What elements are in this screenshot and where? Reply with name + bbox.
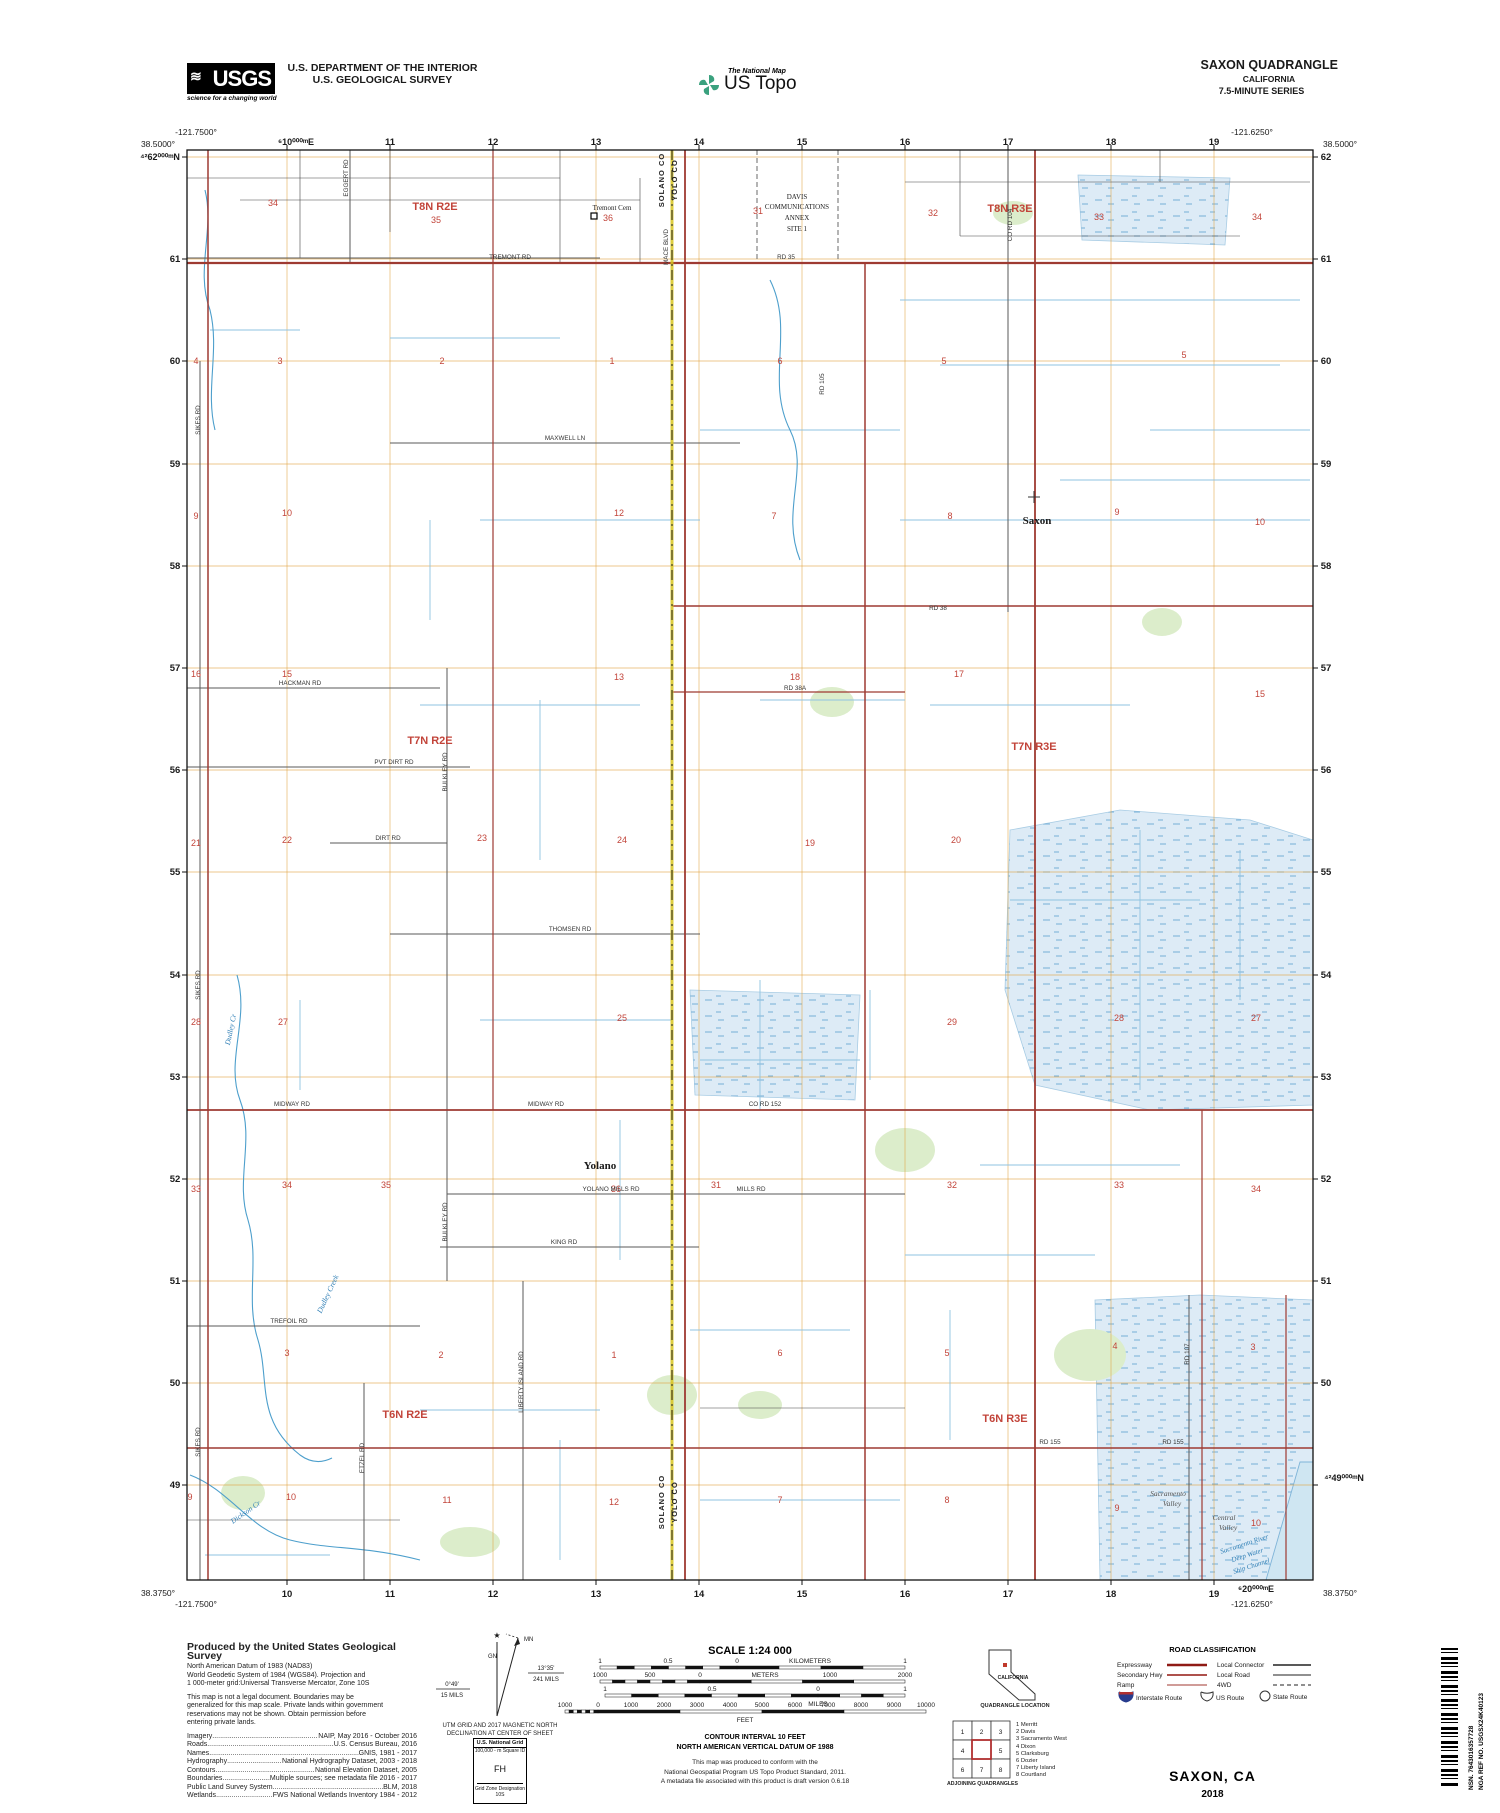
map-label-gridnum: 59 — [170, 459, 181, 470]
credit-dots: ........................................… — [216, 1792, 273, 1801]
map-label-vly: Central — [1213, 1513, 1236, 1522]
map-label-gridnum: 15 — [797, 137, 808, 148]
map-label-sec: 7 — [771, 511, 776, 521]
datum-line: North American Datum of 1983 (NAD83) — [187, 1663, 417, 1672]
adjoining-name: 2 Davis — [1016, 1729, 1106, 1736]
map-label-rd: SIKES RD — [195, 405, 202, 435]
credit-row: Public Land Survey System...............… — [187, 1784, 417, 1793]
map-label-sec: 10 — [1255, 517, 1265, 527]
map-label-gridnum: 55 — [1321, 867, 1332, 878]
map-label-sec: 11 — [442, 1495, 451, 1505]
map-label-gridnum: 10 — [282, 1589, 293, 1600]
map-label-rd: MIDWAY RD — [274, 1101, 310, 1108]
map-label-cnty: YOLO CO — [670, 1481, 679, 1523]
map-label-gridnum: 12 — [488, 137, 499, 148]
map-label-gridnum: 13 — [591, 137, 602, 148]
road-class-label: Ramp — [1117, 1682, 1135, 1689]
map-label-gridnum: 18 — [1106, 137, 1117, 148]
mn-label: MN — [524, 1637, 533, 1643]
map-label-plc: ANNEX — [785, 214, 810, 222]
credit-dots: ........................................… — [207, 1741, 333, 1750]
declination-note-1: UTM GRID AND 2017 MAGNETIC NORTH — [420, 1722, 580, 1730]
topo-map: -121.7500°38.5000°⁶10⁰⁰⁰ᵐE11121314151617… — [0, 0, 1500, 1813]
credit-key: Imagery — [187, 1733, 212, 1742]
map-label-gridnum: 19 — [1209, 1589, 1220, 1600]
usng-square-label: 100,000 - m Square ID — [474, 1748, 526, 1754]
credit-key: Contours — [187, 1767, 215, 1776]
state-route-circle-icon — [1260, 1691, 1270, 1701]
usgs-topo-sheet: ≋ USGS science for a changing world U.S.… — [0, 0, 1500, 1813]
map-label-gridnum: 11 — [385, 137, 396, 148]
disclaimer-line: entering private lands. — [187, 1719, 417, 1728]
adjoining-name: 1 Merritt — [1016, 1722, 1106, 1729]
map-label-gridnum: 60 — [170, 356, 181, 367]
map-label-sec: 9 — [1114, 507, 1119, 517]
map-label-sec: 33 — [191, 1184, 201, 1194]
map-label-sec: 20 — [951, 835, 961, 845]
map-label-sec: 32 — [928, 208, 938, 218]
map-label-sec: 29 — [947, 1017, 957, 1027]
map-label-gridnum: 60 — [1321, 356, 1332, 367]
map-label-cnty: SOLANO CO — [657, 153, 666, 207]
credit-row: Boundaries..............................… — [187, 1775, 417, 1784]
map-label-plc: DAVIS — [787, 193, 808, 201]
adjoining-number: 3 — [999, 1729, 1003, 1736]
map-label-sec: 34 — [1251, 1184, 1261, 1194]
quadrangle-location-caption: QUADRANGLE LOCATION — [975, 1703, 1055, 1709]
map-label-gridnum: 52 — [170, 1174, 181, 1185]
map-label-gridnum: 61 — [170, 254, 181, 265]
map-label-coord: 38.3750° — [1323, 1588, 1357, 1598]
road-classification-legend: ExpresswaySecondary HwyRampLocal Connect… — [1105, 1655, 1315, 1705]
map-label-gridnum: 53 — [170, 1072, 181, 1083]
map-label-sec: 8 — [944, 1495, 949, 1505]
map-label-utm: ⁶20⁰⁰⁰ᵐE — [1238, 1584, 1274, 1594]
sheet-year: 2018 — [1130, 1789, 1295, 1800]
map-label-gridnum: 50 — [170, 1378, 181, 1389]
map-label-sec: 34 — [268, 198, 278, 208]
map-label-gridnum: 19 — [1209, 137, 1220, 148]
map-label-sec: 22 — [282, 835, 292, 845]
map-label-sec: 35 — [381, 1180, 391, 1190]
california-outline: CALIFORNIA — [983, 1648, 1053, 1703]
credit-key: Wetlands — [187, 1792, 216, 1801]
map-label-plc: COMMUNICATIONS — [765, 203, 829, 211]
adjoining-number: 7 — [980, 1767, 984, 1774]
credit-row: Hydrography.............................… — [187, 1758, 417, 1767]
map-label-gridnum: 14 — [694, 1589, 705, 1600]
creek — [204, 190, 215, 430]
credit-dots: ........................................… — [209, 1750, 358, 1759]
map-label-rd: RD 155 — [1039, 1439, 1061, 1446]
barcode-nsn: NSN. 7643016357728 — [1468, 1726, 1475, 1790]
map-label-sec: 33 — [1094, 212, 1104, 222]
adjoining-number: 5 — [999, 1748, 1003, 1755]
contour-line2: NORTH AMERICAN VERTICAL DATUM OF 1988 — [640, 1743, 870, 1753]
adjoining-number: 6 — [961, 1767, 965, 1774]
map-label-sec: 16 — [191, 669, 201, 679]
credit-value: Multiple sources; see metadata file 2016… — [270, 1775, 417, 1784]
map-label-rd: SIKES RD — [195, 1427, 202, 1457]
map-label-sec: 4 — [1112, 1341, 1117, 1351]
adjoining-quadrangles-grid: 12345678 — [952, 1720, 1014, 1782]
map-label-sec: 5 — [1181, 350, 1186, 360]
map-label-sec: 8 — [947, 511, 952, 521]
map-label-gridnum: 12 — [488, 1589, 499, 1600]
map-label-gridnum: 52 — [1321, 1174, 1332, 1185]
shield-label: State Route — [1273, 1694, 1308, 1701]
adjoining-name: 5 Clarksburg — [1016, 1751, 1106, 1758]
gn-label: GN — [488, 1654, 497, 1660]
map-label-town: Saxon — [1023, 515, 1052, 527]
map-label-gridnum: 17 — [1003, 137, 1014, 148]
credit-dots: ........................................… — [227, 1758, 282, 1767]
california-label: CALIFORNIA — [998, 1675, 1029, 1681]
credits-block: Produced by the United States Geological… — [187, 1643, 417, 1801]
map-label-rd: ETZEL RD — [359, 1442, 366, 1473]
map-label-sec: 10 — [282, 508, 292, 518]
marsh-pattern — [1005, 810, 1313, 1110]
map-label-sec: 5 — [944, 1348, 949, 1358]
barcode-nga: NGA REF NO. USGSX24K40123 — [1478, 1693, 1485, 1790]
map-label-sec: 2 — [439, 356, 444, 366]
adjoining-cell — [972, 1740, 991, 1759]
map-label-rd: CO RD 152 — [749, 1101, 782, 1108]
map-label-sec: 23 — [477, 833, 487, 843]
map-label-vly: Sacramento — [1150, 1489, 1186, 1498]
map-label-sec: 19 — [805, 838, 815, 848]
adjoining-number: 1 — [961, 1729, 965, 1736]
map-label-sec: 3 — [277, 356, 282, 366]
map-label-rd: RD 38 — [929, 605, 947, 612]
map-label-rd: TREMONT RD — [489, 254, 531, 261]
credit-row: Contours................................… — [187, 1767, 417, 1776]
disclaimer-line: This map is not a legal document. Bounda… — [187, 1694, 417, 1703]
standard-note-line: This map was produced to conform with th… — [600, 1758, 910, 1768]
map-label-sec: 1 — [609, 356, 614, 366]
map-label-rd: LIBERTY ISLAND RD — [518, 1351, 525, 1413]
map-label-sec: 34 — [282, 1180, 292, 1190]
map-label-gridnum: 53 — [1321, 1072, 1332, 1083]
adjoining-number: 4 — [961, 1748, 965, 1755]
map-label-gridnum: 14 — [694, 137, 705, 148]
map-label-rd: RD 155 — [1162, 1439, 1184, 1446]
map-label-town: Yolano — [584, 1160, 617, 1172]
map-label-gridnum: 51 — [1321, 1276, 1332, 1287]
map-label-sec: 6 — [777, 1348, 782, 1358]
map-label-gridnum: 62 — [1321, 152, 1332, 163]
map-label-rd: RD 38A — [784, 685, 807, 692]
credit-row: Wetlands................................… — [187, 1792, 417, 1801]
usng-title: U.S. National Grid — [474, 1739, 526, 1748]
map-label-twp: T7N R2E — [407, 735, 452, 747]
map-label-coord: 38.5000° — [1323, 139, 1357, 149]
standard-note: This map was produced to conform with th… — [600, 1758, 910, 1787]
map-label-plc: Tremont Cem — [593, 204, 632, 212]
map-label-gridnum: 54 — [1321, 970, 1332, 981]
cemetery-icon — [591, 213, 597, 219]
map-label-sec: 31 — [711, 1180, 721, 1190]
map-label-sec: 17 — [954, 669, 964, 679]
map-label-sec: 21 — [191, 838, 201, 848]
map-label-coord: 38.3750° — [141, 1588, 175, 1598]
map-label-sec: 27 — [278, 1017, 288, 1027]
map-label-vly: Valley — [1219, 1523, 1238, 1532]
credit-dots: ........................................… — [212, 1733, 318, 1742]
credit-row: Names...................................… — [187, 1750, 417, 1759]
map-label-rd: DIRT RD — [375, 835, 401, 842]
credit-value: NAIP, May 2016 - October 2016 — [318, 1733, 417, 1742]
scale-title: SCALE 1:24 000 — [640, 1645, 860, 1657]
credit-dots: ........................................… — [215, 1767, 315, 1776]
map-label-rd: THOMSEN RD — [549, 926, 592, 933]
map-label-sec: 33 — [1114, 1180, 1124, 1190]
map-label-sec: 3 — [284, 1348, 289, 1358]
usng-zone: 10S — [474, 1792, 526, 1798]
map-label-sec: 2 — [438, 1350, 443, 1360]
map-label-gridnum: 11 — [385, 1589, 396, 1600]
vegetation-patch — [1142, 608, 1182, 636]
credit-key: Boundaries — [187, 1775, 222, 1784]
vegetation-patch — [440, 1527, 500, 1557]
shield-label: Interstate Route — [1136, 1695, 1183, 1702]
map-label-sec: 1 — [611, 1350, 616, 1360]
map-label-sec: 10 — [1251, 1518, 1261, 1528]
map-label-sec: 34 — [1252, 212, 1262, 222]
road-class-label: Expressway — [1117, 1662, 1153, 1669]
map-label-rd: HACKMAN RD — [279, 680, 322, 687]
adjoining-quadrangles-caption: ADJOINING QUADRANGLES — [935, 1781, 1030, 1787]
map-label-gridnum: 18 — [1106, 1589, 1117, 1600]
marsh-pattern — [690, 990, 860, 1100]
map-label-gridnum: 61 — [1321, 254, 1332, 265]
datum-line: 1 000-meter grid:Universal Transverse Me… — [187, 1680, 417, 1689]
map-label-gridnum: 57 — [1321, 663, 1332, 674]
declination-note: UTM GRID AND 2017 MAGNETIC NORTH DECLINA… — [420, 1722, 580, 1738]
standard-note-line: A metadata file associated with this pro… — [600, 1777, 910, 1787]
map-label-utm: ⁴²49⁰⁰⁰ᵐN — [1324, 1473, 1364, 1483]
map-label-gridnum: 16 — [900, 137, 911, 148]
map-label-sec: 36 — [603, 213, 613, 223]
credit-key: Roads — [187, 1741, 207, 1750]
map-label-twp: T7N R3E — [1011, 741, 1056, 753]
credit-value: U.S. Census Bureau, 2016 — [334, 1741, 417, 1750]
adjoining-number: 8 — [999, 1767, 1003, 1774]
adjoining-name: 6 Dozier — [1016, 1758, 1106, 1765]
map-label-gridnum: 55 — [170, 867, 181, 878]
map-label-rd: PVT DIRT RD — [374, 759, 414, 766]
gn-mils: 15 MILS — [441, 1693, 463, 1699]
map-label-twp: T8N R2E — [412, 201, 457, 213]
quad-location-dot — [1003, 1663, 1007, 1667]
map-label-rd: RD 105 — [819, 373, 826, 395]
map-label-sec: 5 — [941, 356, 946, 366]
adjoining-name: 8 Courtland — [1016, 1772, 1106, 1779]
credit-row: Roads...................................… — [187, 1741, 417, 1750]
map-label-sec: 28 — [1114, 1013, 1124, 1023]
adjoining-name: 7 Liberty Island — [1016, 1765, 1106, 1772]
map-label-gridnum: 13 — [591, 1589, 602, 1600]
credit-value: National Hydrography Dataset, 2003 - 201… — [282, 1758, 417, 1767]
map-label-rd: KING RD — [551, 1239, 578, 1246]
map-label-rd: BULKLEY RD — [442, 752, 449, 792]
credit-dots: ........................................… — [273, 1784, 384, 1793]
declination-note-2: DECLINATION AT CENTER OF SHEET — [420, 1730, 580, 1738]
declination-diagram: ★ MN GN 0°49' 15 MILS 13°35' 241 MILS — [430, 1628, 580, 1723]
map-label-plc: SITE 1 — [787, 225, 808, 233]
road-class-label: Secondary Hwy — [1117, 1672, 1163, 1679]
contour-line1: CONTOUR INTERVAL 10 FEET — [640, 1733, 870, 1743]
map-label-sec: 7 — [777, 1495, 782, 1505]
datum-line: World Geodetic System of 1984 (WGS84). P… — [187, 1672, 417, 1681]
map-label-rd: SIKES RD — [195, 970, 202, 1000]
us-route-shield-icon — [1201, 1692, 1213, 1701]
standard-note-line: National Geospatial Program US Topo Prod… — [600, 1768, 910, 1778]
map-label-utm: ⁶10⁰⁰⁰ᵐE — [278, 137, 314, 147]
map-label-vly: Valley — [1163, 1499, 1182, 1508]
adjoining-name: 3 Sacramento West — [1016, 1736, 1106, 1743]
map-label-cnty: SOLANO CO — [657, 1475, 666, 1529]
credit-key: Hydrography — [187, 1758, 227, 1767]
map-label-sec: 32 — [947, 1180, 957, 1190]
disclaimer: This map is not a legal document. Bounda… — [187, 1694, 417, 1728]
credit-row: Imagery.................................… — [187, 1733, 417, 1742]
map-label-coord: 38.5000° — [141, 139, 175, 149]
map-label-utm: ⁴²62⁰⁰⁰ᵐN — [140, 152, 180, 162]
map-label-sec: 9 — [1114, 1503, 1119, 1513]
map-label-gridnum: 54 — [170, 970, 181, 981]
road-class-label: 4WD — [1217, 1682, 1232, 1689]
crossing-icon — [1028, 491, 1040, 503]
marsh-pattern — [1078, 175, 1230, 245]
datum-lines: North American Datum of 1983 (NAD83)Worl… — [187, 1663, 417, 1689]
usng-square-id: FH — [474, 1764, 526, 1774]
map-label-gridnum: 49 — [170, 1480, 181, 1491]
map-label-sec: 3 — [1250, 1342, 1255, 1352]
credit-value: GNIS, 1981 - 2017 — [359, 1750, 417, 1759]
map-label-gridnum: 56 — [1321, 765, 1332, 776]
map-label-sec: 35 — [431, 215, 441, 225]
gn-deg: 0°49' — [445, 1682, 459, 1688]
map-label-sec: 10 — [286, 1492, 296, 1502]
map-label-sec: 9 — [187, 1492, 192, 1502]
map-label-wtr: Dudley Creek — [315, 1273, 341, 1316]
map-label-rd: MACE BLVD — [663, 229, 670, 265]
map-label-coord: -121.7500° — [175, 127, 217, 137]
map-label-coord: -121.6250° — [1231, 127, 1273, 137]
credit-value: FWS National Wetlands Inventory 1984 - 2… — [273, 1792, 417, 1801]
map-label-rd: EGGERT RD — [343, 159, 350, 197]
map-label-gridnum: 51 — [170, 1276, 181, 1287]
produced-by: Produced by the United States Geological… — [187, 1643, 417, 1660]
map-label-rd: MILLS RD — [736, 1186, 765, 1193]
credit-key: Public Land Survey System — [187, 1784, 273, 1793]
map-label-gridnum: 59 — [1321, 459, 1332, 470]
credit-value: National Elevation Dataset, 2005 — [315, 1767, 417, 1776]
map-label-rd: YOLANO MILLS RD — [582, 1186, 639, 1193]
map-label-gridnum: 56 — [170, 765, 181, 776]
map-label-cnty: YOLO CO — [670, 159, 679, 201]
map-label-gridnum: 15 — [797, 1589, 808, 1600]
map-label-gridnum: 57 — [170, 663, 181, 674]
road-classification-title: ROAD CLASSIFICATION — [1130, 1645, 1295, 1654]
map-label-sec: 6 — [777, 356, 782, 366]
interstate-shield-icon — [1119, 1692, 1133, 1702]
map-label-rd: RD 35 — [777, 254, 795, 261]
map-label-rd: BULKLEY RD — [442, 1202, 449, 1242]
creek — [235, 975, 332, 1461]
vegetation-patch — [1054, 1329, 1126, 1381]
map-label-rd: CO RD 104 — [1007, 208, 1014, 241]
barcode — [1441, 1648, 1458, 1788]
map-label-sec: 24 — [617, 835, 627, 845]
adjoining-quadrangles-names: 1 Merritt2 Davis3 Sacramento West4 Dixon… — [1016, 1722, 1106, 1780]
map-label-gridnum: 58 — [170, 561, 181, 572]
map-label-sec: 13 — [614, 672, 624, 682]
map-label-rd: MIDWAY RD — [528, 1101, 564, 1108]
map-label-sec: 4 — [193, 356, 198, 366]
map-label-gridnum: 17 — [1003, 1589, 1014, 1600]
map-label-sec: 25 — [617, 1013, 627, 1023]
map-label-sec: 27 — [1251, 1013, 1261, 1023]
mn-mils: 241 MILS — [533, 1677, 559, 1683]
map-label-gridnum: 58 — [1321, 561, 1332, 572]
map-label-sec: 28 — [191, 1017, 201, 1027]
map-label-sec: 15 — [282, 669, 292, 679]
shield-label: US Route — [1216, 1695, 1245, 1702]
road-class-label: Local Connector — [1217, 1662, 1265, 1669]
map-label-twp: T6N R3E — [982, 1413, 1027, 1425]
map-label-sec: 18 — [790, 672, 800, 682]
svg-text:★: ★ — [493, 1631, 500, 1640]
map-label-rd: RD 107 — [1184, 1343, 1191, 1365]
credit-dots: ........................................… — [222, 1775, 269, 1784]
map-label-gridnum: 16 — [900, 1589, 911, 1600]
map-label-sec: 9 — [193, 511, 198, 521]
sheet-title: SAXON, CA — [1130, 1768, 1295, 1784]
data-credits: Imagery.................................… — [187, 1733, 417, 1801]
disclaimer-line: reservations may not be shown. Obtain pe… — [187, 1711, 417, 1720]
map-label-rd: TREFOIL RD — [270, 1318, 308, 1325]
disclaimer-line: generalized for this map scale. Private … — [187, 1702, 417, 1711]
map-label-rd: MAXWELL LN — [545, 435, 586, 442]
map-label-coord: -121.6250° — [1231, 1599, 1273, 1609]
usng-box: U.S. National Grid 100,000 - m Square ID… — [473, 1738, 527, 1804]
map-label-sec: 15 — [1255, 689, 1265, 699]
map-label-coord: -121.7500° — [175, 1599, 217, 1609]
map-label-twp: T6N R2E — [382, 1409, 427, 1421]
map-label-gridnum: 50 — [1321, 1378, 1332, 1389]
map-label-sec: 12 — [609, 1497, 619, 1507]
map-label-sec: 31 — [753, 206, 763, 216]
map-label-sec: 12 — [614, 508, 624, 518]
road-class-label: Local Road — [1217, 1672, 1250, 1679]
adjoining-name: 4 Dixon — [1016, 1744, 1106, 1751]
mn-deg: 13°35' — [538, 1666, 555, 1672]
credit-value: BLM, 2018 — [383, 1784, 417, 1793]
vegetation-patch — [738, 1391, 782, 1419]
credit-key: Names — [187, 1750, 209, 1759]
adjoining-number: 2 — [980, 1729, 984, 1736]
map-label-wtr: Dudley Cr — [223, 1013, 239, 1047]
contour-note: CONTOUR INTERVAL 10 FEET NORTH AMERICAN … — [640, 1733, 870, 1753]
